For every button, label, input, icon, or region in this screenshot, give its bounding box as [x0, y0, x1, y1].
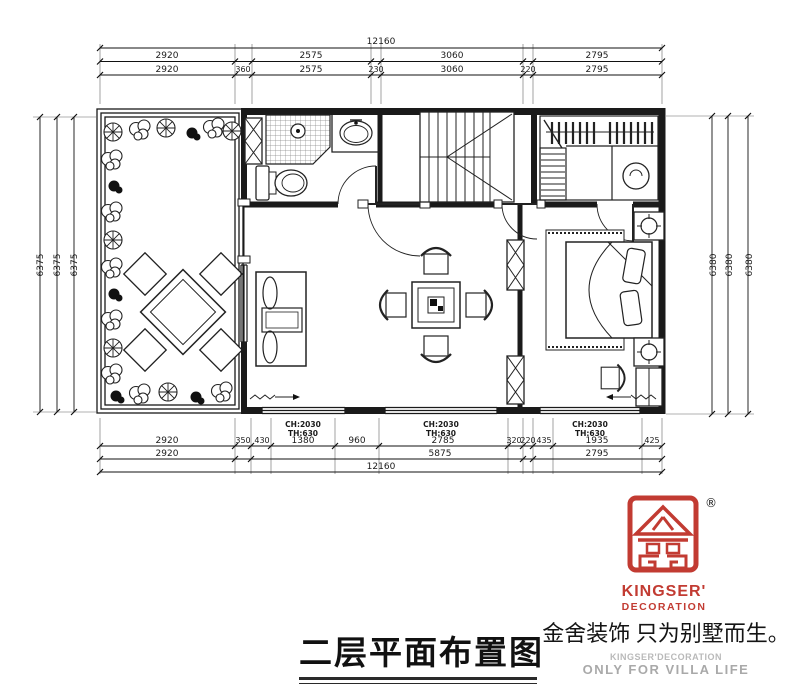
dim-bottom: 320	[506, 436, 521, 445]
brand-tagline: ONLY FOR VILLA LIFE	[538, 662, 794, 677]
kingser-logo-mark: ®	[608, 494, 720, 576]
dim-top: 2920	[156, 65, 179, 75]
bathroom-door	[338, 166, 376, 204]
window-label-th: TH:630	[426, 429, 456, 438]
dim-right: 6380	[745, 253, 755, 276]
dim-top-total: 12160	[367, 37, 396, 47]
dim-right: 6380	[709, 253, 719, 276]
terrace-table-set	[124, 253, 242, 371]
dim-bottom: 2920	[156, 436, 179, 446]
toilet-icon	[256, 166, 307, 200]
dim-bottom: 425	[644, 436, 659, 445]
brand-name-en: KINGSER'DECORATION	[538, 652, 794, 662]
window-label-ch: CH:2030	[423, 420, 459, 429]
dining-table-set	[380, 248, 492, 362]
window-label-th: TH:630	[575, 429, 605, 438]
stool-icon	[623, 163, 649, 189]
nightstand-icon	[634, 212, 664, 240]
column-icon	[507, 356, 524, 404]
dim-top: 2795	[586, 65, 609, 75]
sideboard	[256, 272, 306, 366]
drawing-title-block: 二层平面布置图	[299, 626, 544, 684]
dim-bottom: 5875	[429, 449, 452, 459]
dim-top: 230	[368, 65, 383, 74]
brand-slogan-block: 金舍装饰 只为别墅而生。 KINGSER'DECORATION ONLY FOR…	[538, 616, 794, 677]
dimension-right: 6380 6380 6380	[709, 113, 755, 417]
dim-bottom: 2795	[586, 449, 609, 459]
sink-icon	[332, 115, 380, 152]
terrace-door-opening	[238, 199, 250, 263]
logo-wordmark-sub: DECORATION	[608, 601, 720, 613]
hall-door	[358, 200, 430, 256]
curtain-icon	[250, 394, 300, 400]
dimension-bottom: 2920 350 430 1380 960 2785 320 220 435 1…	[97, 436, 665, 475]
dim-bottom: 220	[520, 436, 535, 445]
dim-top: 360	[235, 65, 250, 74]
floor-plan-page: 12160 2920 2575 3060 2795 2920 360 2575 …	[0, 0, 800, 685]
title-underline	[299, 677, 537, 684]
dim-left: 6375	[70, 254, 80, 277]
dim-bottom: 430	[254, 436, 269, 445]
dim-top: 220	[520, 65, 535, 74]
window-label-ch: CH:2030	[572, 420, 608, 429]
dim-bottom: 435	[536, 436, 551, 445]
window-label-ch: CH:2030	[285, 420, 321, 429]
staircase	[420, 112, 545, 239]
kingser-logo: ® KINGSER' DECORATION	[608, 494, 720, 613]
second-floor-plan-drawing: 12160 2920 2575 3060 2795 2920 360 2575 …	[0, 0, 800, 490]
terrace	[97, 109, 243, 413]
registered-mark: ®	[705, 496, 717, 510]
bedroom	[546, 212, 664, 406]
dim-top: 2575	[300, 51, 323, 61]
drawing-title: 二层平面布置图	[299, 626, 544, 674]
dim-top: 2920	[156, 51, 179, 61]
dim-bottom: 960	[348, 436, 365, 446]
dim-top: 2575	[300, 65, 323, 75]
dim-bottom: 2920	[156, 449, 179, 459]
bottom-windows	[262, 408, 640, 414]
bed	[566, 242, 652, 338]
window-label-th: TH:630	[288, 429, 318, 438]
dim-right: 6380	[725, 253, 735, 276]
nightstand-icon	[634, 338, 664, 366]
logo-wordmark: KINGSER'	[608, 583, 720, 601]
pillow-icon	[620, 290, 643, 326]
column-icon	[245, 118, 262, 164]
dim-top: 2795	[586, 51, 609, 61]
terrace-window	[241, 265, 247, 342]
bathroom	[245, 115, 380, 204]
dim-top: 3060	[441, 65, 464, 75]
brand-slogan: 金舍装饰 只为别墅而生。	[538, 616, 794, 648]
bedroom-chair	[601, 365, 624, 392]
dim-left: 6375	[53, 254, 63, 277]
shower-area	[266, 115, 330, 164]
dim-top: 3060	[441, 51, 464, 61]
dim-bottom-total: 12160	[367, 462, 396, 472]
dim-left: 6375	[36, 254, 46, 277]
dim-bottom: 350	[235, 436, 250, 445]
window-labels: CH:2030 TH:630 CH:2030 TH:630 CH:2030 TH…	[285, 420, 608, 438]
bedroom-cabinet	[636, 368, 662, 406]
column-icon	[507, 240, 524, 290]
dimension-left: 6375 6375 6375	[36, 114, 80, 415]
